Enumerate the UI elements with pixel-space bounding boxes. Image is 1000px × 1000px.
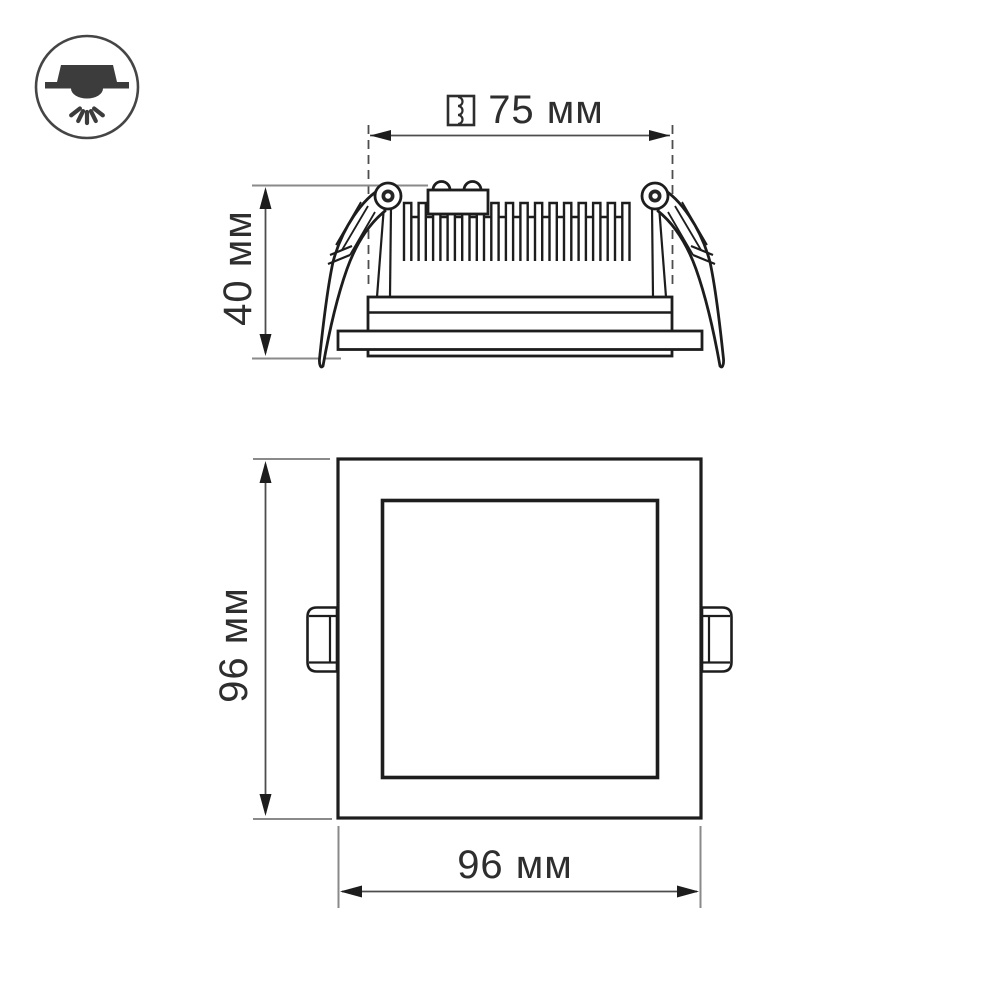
glass-flange: [338, 331, 702, 350]
fixture-body: [338, 297, 702, 356]
dim-label-cutout-width: 75 мм: [420, 87, 630, 133]
terminal-block: [428, 182, 488, 215]
arrowhead-down: [260, 334, 272, 356]
mount-tab-right: [702, 608, 732, 672]
arrowhead-up: [260, 461, 272, 483]
front-view: [253, 459, 732, 908]
light-rays-icon: [71, 109, 103, 124]
dim-text-panel-width: 96 мм: [457, 843, 573, 888]
cutout-hole-icon: [446, 94, 476, 127]
dim-label-panel-width: 96 мм: [443, 842, 587, 888]
arrowhead-right: [677, 886, 699, 898]
pivot-left: [375, 183, 401, 209]
dim-label-fixture-height: 40 мм: [216, 198, 260, 338]
arrowhead-right: [649, 130, 670, 141]
panel-glass-window: [383, 501, 658, 778]
side-view: [252, 125, 724, 367]
arrowhead-down: [260, 794, 272, 816]
dim-text-cutout-width: 75 мм: [488, 88, 604, 133]
mount-tab-left: [308, 608, 338, 672]
recessed-downlight-icon: [36, 36, 138, 138]
dim-label-panel-height: 96 мм: [211, 573, 257, 717]
arrowhead-up: [260, 187, 272, 209]
dim-text-fixture-height: 40 мм: [216, 210, 261, 326]
dim-text-panel-height: 96 мм: [212, 587, 257, 703]
arrowhead-left: [340, 886, 362, 898]
drawing-canvas: 75 мм 40 мм 96 мм 96 мм: [0, 0, 1000, 1000]
arrowhead-left: [370, 130, 391, 141]
pivot-right: [642, 183, 668, 209]
